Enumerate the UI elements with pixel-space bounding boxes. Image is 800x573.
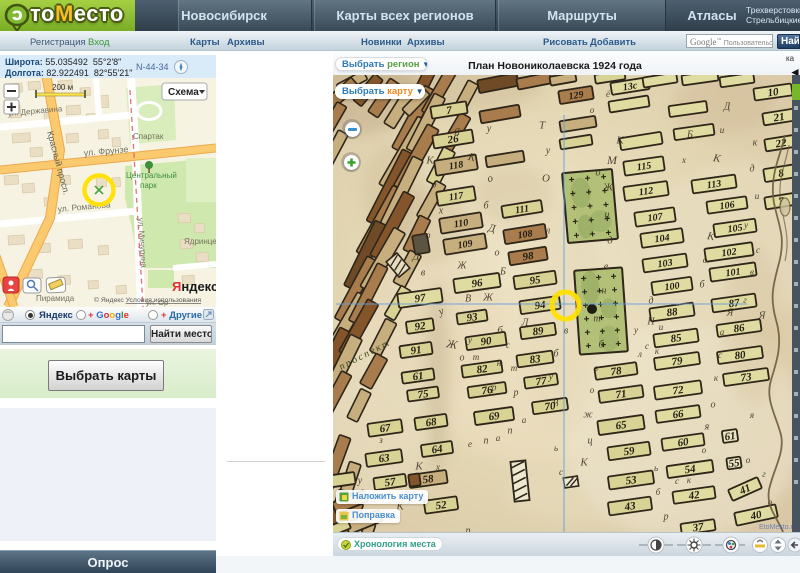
svg-text:64: 64 (431, 443, 444, 456)
svg-text:85: 85 (670, 332, 683, 345)
svg-text:е: е (604, 261, 609, 272)
svg-text:Д: Д (412, 251, 421, 263)
svg-text:59: 59 (623, 445, 636, 458)
svg-text:о: о (702, 445, 707, 455)
svg-text:в: в (750, 267, 754, 277)
svg-text:91: 91 (410, 344, 423, 357)
svg-text:а: а (496, 433, 501, 443)
svg-text:Пирамида: Пирамида (36, 294, 75, 303)
svg-text:т: т (473, 352, 480, 362)
svg-text:EtoMesto.ru: EtoMesto.ru (759, 524, 792, 531)
svg-text:х: х (435, 462, 440, 472)
svg-text:Ж: Ж (456, 260, 467, 271)
svg-text:о: о (590, 105, 595, 115)
svg-text:М: М (606, 153, 618, 167)
svg-text:© Яндекс Условия использования: © Яндекс Условия использования (94, 296, 201, 304)
svg-text:55: 55 (728, 457, 741, 470)
svg-text:Центральный: Центральный (126, 171, 177, 180)
svg-text:а: а (720, 327, 725, 337)
svg-text:97: 97 (414, 292, 427, 305)
svg-text:у: у (548, 371, 554, 382)
svg-text:о: о (590, 385, 595, 395)
svg-text:р: р (663, 511, 669, 522)
svg-text:67: 67 (379, 422, 392, 435)
svg-text:77: 77 (535, 375, 548, 388)
svg-text:п: п (508, 425, 513, 436)
svg-text:10: 10 (767, 86, 780, 99)
svg-text:с: с (675, 476, 679, 486)
svg-text:112: 112 (638, 185, 654, 198)
svg-text:ц: ц (588, 435, 593, 446)
svg-text:94: 94 (534, 299, 547, 312)
svg-text:о: о (426, 230, 431, 241)
svg-text:О: О (542, 173, 550, 185)
svg-text:з: з (378, 435, 383, 445)
svg-text:о: о (460, 352, 465, 363)
svg-text:93: 93 (466, 311, 479, 324)
svg-text:Ядринце: Ядринце (184, 237, 216, 246)
svg-text:86: 86 (733, 322, 746, 335)
svg-text:89: 89 (532, 325, 545, 338)
svg-text:и: и (605, 209, 610, 220)
svg-text:82: 82 (476, 363, 489, 376)
svg-text:53: 53 (625, 474, 638, 487)
svg-text:71: 71 (615, 388, 628, 401)
svg-text:я: я (749, 410, 754, 420)
svg-text:79: 79 (671, 355, 684, 368)
svg-text:75: 75 (417, 388, 430, 401)
svg-text:21: 21 (772, 111, 786, 125)
svg-text:ь: ь (654, 463, 658, 473)
svg-text:н: н (602, 285, 607, 296)
svg-text:у: у (545, 145, 551, 156)
svg-text:69: 69 (488, 410, 501, 423)
svg-text:с: с (559, 467, 563, 477)
svg-text:т: т (593, 313, 600, 324)
svg-text:105: 105 (727, 222, 743, 235)
svg-text:90: 90 (480, 335, 493, 348)
svg-text:л: л (545, 225, 551, 236)
svg-text:115: 115 (636, 160, 652, 173)
svg-text:88: 88 (666, 306, 679, 319)
svg-text:у: у (743, 220, 748, 230)
svg-text:р: р (513, 387, 519, 398)
svg-text:58: 58 (422, 473, 435, 486)
svg-text:в: в (594, 363, 598, 373)
svg-text:103: 103 (657, 257, 673, 270)
svg-text:72: 72 (672, 384, 685, 397)
svg-text:60: 60 (677, 436, 690, 449)
svg-text:у: у (633, 325, 638, 335)
svg-text:109: 109 (457, 238, 474, 251)
svg-text:г: г (762, 469, 766, 479)
svg-text:13c: 13c (622, 80, 639, 93)
svg-text:в: в (421, 267, 426, 278)
svg-text:57: 57 (384, 476, 397, 489)
svg-text:и: и (720, 125, 725, 135)
svg-text:118: 118 (448, 159, 464, 172)
svg-text:100: 100 (664, 280, 680, 293)
svg-text:ц: ц (553, 395, 559, 407)
svg-text:110: 110 (453, 217, 469, 230)
svg-text:65: 65 (615, 419, 628, 432)
svg-text:у: у (486, 123, 492, 134)
svg-text:К: К (579, 457, 588, 469)
svg-text:а: а (522, 415, 527, 425)
svg-text:д: д (648, 295, 653, 306)
svg-text:52: 52 (435, 499, 448, 512)
svg-text:107: 107 (647, 211, 664, 224)
svg-text:р: р (465, 525, 471, 532)
svg-text:Спартак: Спартак (133, 132, 164, 141)
svg-text:о: о (746, 455, 751, 465)
svg-text:т: т (511, 363, 518, 373)
svg-text:Б: Б (499, 266, 506, 277)
svg-text:108: 108 (517, 228, 534, 241)
svg-text:Яндекс: Яндекс (172, 279, 216, 294)
svg-text:с: с (645, 341, 649, 351)
svg-text:61: 61 (412, 370, 425, 383)
svg-text:80: 80 (734, 349, 747, 362)
svg-text:Л: Л (521, 317, 530, 328)
svg-text:парк: парк (140, 181, 157, 190)
svg-text:Я: Я (453, 127, 461, 137)
svg-text:К: К (615, 135, 624, 147)
svg-text:К: К (425, 155, 434, 167)
svg-text:42: 42 (687, 489, 701, 503)
svg-text:200 м: 200 м (52, 83, 73, 92)
svg-text:43: 43 (623, 500, 637, 514)
svg-text:у: у (357, 475, 363, 486)
svg-text:129: 129 (568, 89, 585, 102)
svg-text:п: п (484, 435, 489, 446)
svg-text:68: 68 (425, 416, 438, 429)
svg-text:и: и (755, 191, 760, 201)
svg-text:Н: Н (646, 316, 655, 327)
svg-text:96: 96 (471, 277, 484, 290)
svg-text:л: л (637, 349, 642, 359)
svg-text:83: 83 (529, 353, 542, 366)
svg-text:к: к (753, 137, 758, 148)
svg-text:Схема: Схема (168, 87, 199, 98)
svg-text:о: о (495, 247, 500, 258)
svg-text:ь: ь (554, 443, 558, 453)
svg-text:б: б (656, 487, 661, 497)
svg-text:В: В (465, 293, 471, 304)
svg-text:Ж: Ж (482, 292, 494, 304)
svg-text:106: 106 (719, 199, 735, 212)
svg-text:63: 63 (378, 452, 391, 465)
svg-text:я: я (704, 421, 710, 432)
svg-text:92: 92 (414, 320, 427, 333)
svg-text:102: 102 (721, 246, 737, 259)
svg-text:113: 113 (706, 178, 722, 191)
svg-text:111: 111 (514, 203, 529, 216)
svg-text:о: о (432, 179, 437, 190)
svg-text:х: х (438, 205, 444, 216)
svg-text:д: д (607, 235, 613, 247)
svg-text:101: 101 (725, 266, 741, 279)
svg-text:с: с (718, 350, 722, 360)
svg-text:с: с (756, 245, 760, 255)
svg-text:о: о (711, 399, 716, 410)
svg-text:73: 73 (740, 371, 753, 384)
svg-text:К: К (414, 461, 423, 473)
svg-text:Б: Б (686, 129, 693, 140)
svg-text:у: у (467, 335, 472, 345)
svg-text:95: 95 (529, 274, 542, 287)
svg-text:Т: Т (539, 120, 546, 132)
svg-text:д: д (749, 163, 754, 174)
svg-text:Д: Д (723, 101, 731, 112)
svg-text:и: и (659, 322, 664, 332)
svg-text:Ж: Ж (602, 182, 614, 194)
svg-text:о: о (596, 167, 601, 178)
svg-text:ж: ж (583, 409, 593, 420)
svg-text:е: е (468, 439, 472, 449)
svg-text:с: с (506, 340, 510, 350)
svg-text:66: 66 (672, 408, 685, 421)
svg-text:н: н (497, 358, 502, 368)
svg-text:37: 37 (691, 521, 705, 532)
svg-text:б: б (497, 325, 503, 337)
svg-text:в: в (564, 325, 569, 336)
svg-text:о: о (703, 255, 708, 265)
svg-text:х: х (681, 155, 686, 165)
svg-text:р: р (491, 382, 497, 393)
svg-text:61: 61 (724, 430, 737, 443)
svg-text:104: 104 (654, 232, 670, 245)
svg-text:78: 78 (610, 365, 623, 378)
